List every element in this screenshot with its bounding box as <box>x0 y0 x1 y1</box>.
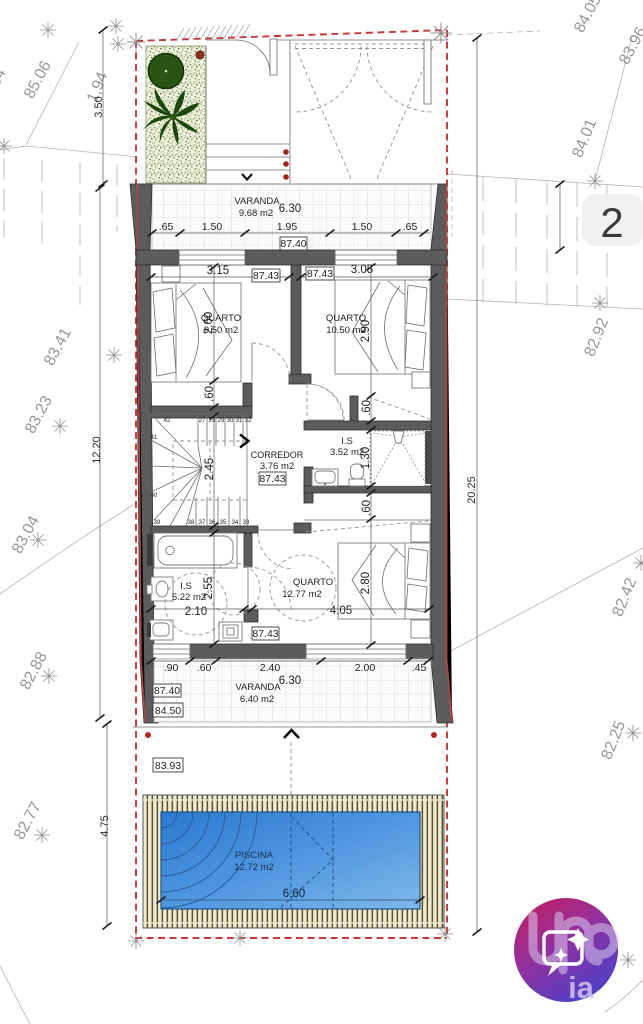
svg-text:2.10: 2.10 <box>185 606 207 618</box>
svg-text:I.S: I.S <box>180 581 192 592</box>
svg-text:.45: .45 <box>412 662 427 674</box>
svg-text:1.50: 1.50 <box>352 221 373 233</box>
svg-text:87.43: 87.43 <box>307 268 333 280</box>
svg-text:38: 38 <box>188 520 195 526</box>
svg-text:82.88: 82.88 <box>17 649 51 692</box>
svg-text:2.40: 2.40 <box>260 662 281 674</box>
svg-text:5.22 m2: 5.22 m2 <box>172 592 206 603</box>
svg-text:35: 35 <box>220 520 227 526</box>
svg-text:2.60: 2.60 <box>203 312 215 334</box>
svg-text:2.45: 2.45 <box>204 458 216 480</box>
svg-text:2.80: 2.80 <box>360 572 372 594</box>
svg-text:31: 31 <box>236 418 243 424</box>
svg-text:CORREDOR: CORREDOR <box>251 450 304 460</box>
svg-text:82.25: 82.25 <box>598 718 629 762</box>
svg-text:82.77: 82.77 <box>11 799 45 842</box>
svg-text:.60: .60 <box>361 400 373 416</box>
svg-text:87.43: 87.43 <box>253 270 279 282</box>
svg-text:83.41: 83.41 <box>41 325 75 368</box>
svg-text:32: 32 <box>245 418 252 424</box>
svg-text:20.25: 20.25 <box>466 476 478 504</box>
svg-text:84.01: 84.01 <box>569 116 600 160</box>
svg-text:84: 84 <box>0 66 10 90</box>
svg-text:39: 39 <box>154 520 161 526</box>
svg-text:3.15: 3.15 <box>207 265 229 277</box>
svg-text:ia: ia <box>568 970 595 1005</box>
svg-text:2.00: 2.00 <box>355 662 376 674</box>
svg-text:4.05: 4.05 <box>330 605 352 617</box>
svg-text:29: 29 <box>218 418 225 424</box>
svg-text:84.50: 84.50 <box>155 705 181 717</box>
svg-text:1.95: 1.95 <box>277 221 298 233</box>
svg-text:6.30: 6.30 <box>279 203 301 215</box>
svg-text:87.40: 87.40 <box>280 238 306 250</box>
svg-text:.65: .65 <box>403 221 418 233</box>
svg-text:87.43: 87.43 <box>252 628 278 640</box>
svg-text:83.23: 83.23 <box>22 393 56 436</box>
svg-text:30: 30 <box>227 418 234 424</box>
svg-text:.60: .60 <box>361 500 373 516</box>
svg-text:84.05: 84.05 <box>571 0 605 36</box>
svg-text:3.52 m2: 3.52 m2 <box>330 447 364 458</box>
svg-text:3.50: 3.50 <box>93 96 105 117</box>
svg-text:34: 34 <box>232 520 239 526</box>
svg-text:2.90: 2.90 <box>360 320 372 342</box>
svg-text:.60: .60 <box>197 662 212 674</box>
svg-text:27: 27 <box>199 418 206 424</box>
svg-text:40: 40 <box>151 493 158 499</box>
svg-text:6.30: 6.30 <box>279 675 301 687</box>
svg-text:83.93: 83.93 <box>155 760 181 772</box>
svg-text:.60: .60 <box>204 386 216 402</box>
svg-text:VARANDA: VARANDA <box>235 682 281 693</box>
svg-text:QUARTO: QUARTO <box>293 577 333 588</box>
svg-text:3.76 m2: 3.76 m2 <box>260 461 294 472</box>
svg-text:9.68 m2: 9.68 m2 <box>239 208 273 219</box>
svg-text:12.77 m2: 12.77 m2 <box>282 589 322 600</box>
svg-text:85.06: 85.06 <box>21 58 55 101</box>
svg-text:37: 37 <box>199 520 206 526</box>
svg-text:12.20: 12.20 <box>91 436 103 464</box>
svg-text:.65: .65 <box>159 221 174 233</box>
svg-text:VARANDA: VARANDA <box>234 196 280 207</box>
svg-text:83.96: 83.96 <box>616 24 643 67</box>
svg-text:4.75: 4.75 <box>99 815 111 836</box>
svg-text:82.92: 82.92 <box>581 315 612 359</box>
svg-text:1.50: 1.50 <box>202 221 223 233</box>
svg-text:PISCINA: PISCINA <box>235 850 274 861</box>
svg-text:2: 2 <box>600 199 623 246</box>
svg-text:12.72 m2: 12.72 m2 <box>234 862 274 873</box>
svg-text:87.43: 87.43 <box>259 473 285 485</box>
svg-text:82.42: 82.42 <box>609 575 640 619</box>
svg-text:.90: .90 <box>164 662 179 674</box>
svg-text:6.60: 6.60 <box>283 888 305 900</box>
svg-text:3.05: 3.05 <box>351 264 373 276</box>
svg-text:87.40: 87.40 <box>154 685 180 697</box>
svg-text:I.S: I.S <box>341 436 353 447</box>
svg-text:42: 42 <box>164 418 171 424</box>
svg-text:41: 41 <box>151 435 158 441</box>
svg-text:6.40 m2: 6.40 m2 <box>240 694 274 705</box>
svg-text:33: 33 <box>243 520 250 526</box>
